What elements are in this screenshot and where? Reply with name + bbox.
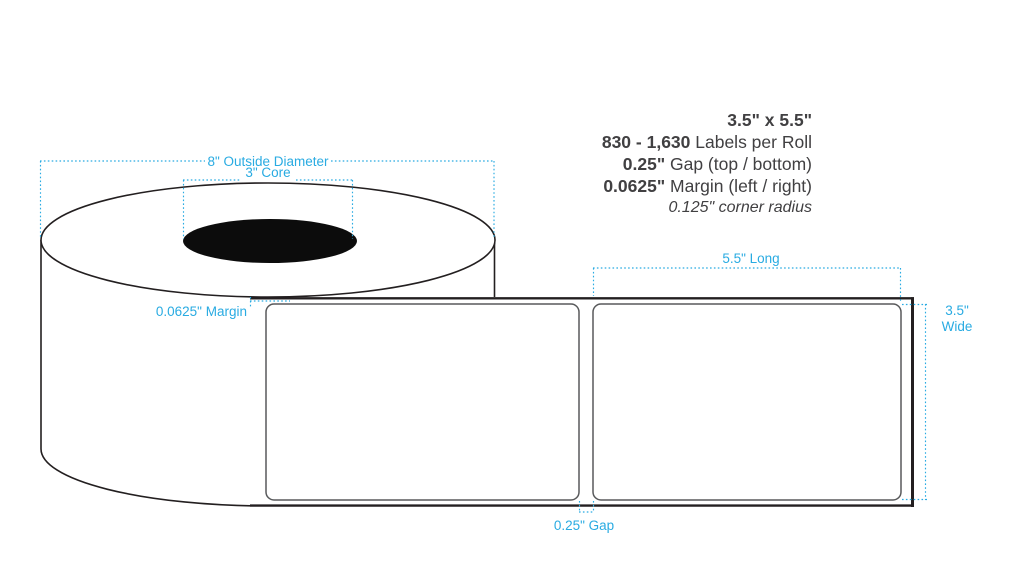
roll-top-face [41,183,495,297]
spec-labels-per-roll: 830 - 1,630 Labels per Roll [602,131,812,153]
label-1 [266,304,579,500]
roll-core-hole [183,219,357,263]
spec-margin-value: 0.0625" [603,176,665,196]
long-dim-label: 5.5" Long [722,251,779,266]
wide-dim-label-line1: 3.5" [945,303,969,318]
spec-gap-value: 0.25" [623,154,665,174]
core-dim-label: 3" Core [245,165,290,180]
spec-text-block: 3.5" x 5.5" 830 - 1,630 Labels per Roll … [602,109,812,218]
spec-corner-radius: 0.125" corner radius [602,197,812,218]
spec-size: 3.5" x 5.5" [602,109,812,131]
spec-margin: 0.0625" Margin (left / right) [602,175,812,197]
roll-and-labels-drawing: 8" Outside Diameter 3" Core 0.0625" Marg… [0,0,1024,569]
dimension-long: 5.5" Long [593,251,901,302]
label-2 [593,304,901,500]
spec-labels-per-roll-value: 830 - 1,630 [602,132,691,152]
spec-gap: 0.25" Gap (top / bottom) [602,153,812,175]
wide-dim-label-line2: Wide [942,319,973,334]
margin-dim-label: 0.0625" Margin [156,304,247,319]
spec-size-value: 3.5" x 5.5" [727,110,812,130]
label-roll-spec-diagram: 8" Outside Diameter 3" Core 0.0625" Marg… [0,0,1024,569]
gap-dim-label: 0.25" Gap [554,518,614,533]
